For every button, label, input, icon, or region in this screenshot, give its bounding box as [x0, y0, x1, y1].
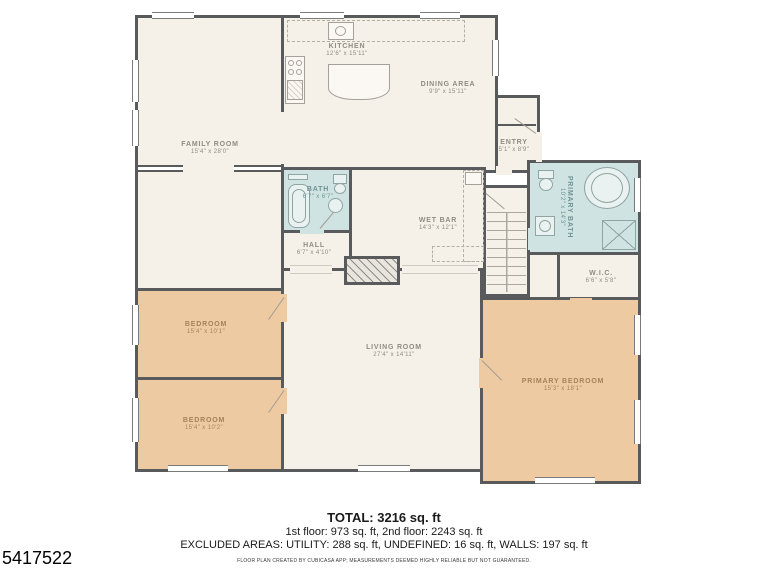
window-primary-bath-right — [634, 178, 641, 212]
primary-bath-toilet-bowl — [539, 178, 553, 191]
summary-floors: 1st floor: 973 sq. ft, 2nd floor: 2243 s… — [0, 526, 768, 538]
window-family-left-1 — [132, 60, 139, 102]
window-primary-bedroom-right-2 — [634, 400, 641, 444]
kitchen-counter — [287, 20, 465, 42]
family-room-opening-left — [138, 165, 183, 172]
wet-bar-sink — [465, 172, 482, 185]
kitchen-sink-basin — [335, 26, 346, 36]
room-living-room — [281, 268, 483, 472]
window-bedroom-2-left — [132, 398, 139, 442]
entry-hall-opening — [496, 166, 512, 175]
window-top-2 — [300, 12, 344, 19]
wet-bar-counter-horizontal — [432, 246, 484, 262]
entry-closet-divider — [498, 124, 536, 126]
window-bedroom-1-left — [132, 305, 139, 345]
primary-bath-shower — [602, 220, 636, 250]
stove-burner-4 — [296, 69, 302, 75]
summary-excluded-areas: EXCLUDED AREAS: UTILITY: 288 sq. ft, UND… — [0, 539, 768, 551]
floor-plan-page: FAMILY ROOM 15'4" x 28'0" KITCHEN 12'6" … — [0, 0, 768, 576]
wet-bar-living-opening — [402, 265, 478, 274]
room-bedroom-2 — [135, 377, 284, 472]
family-room-opening-right — [234, 165, 281, 172]
window-top-3 — [420, 12, 460, 19]
summary-disclaimer: FLOOR PLAN CREATED BY CUBICASA APP; MEAS… — [0, 558, 768, 564]
wic-door-gap — [570, 298, 592, 304]
primary-bath-tub-inner — [591, 173, 623, 203]
room-bedroom-1 — [135, 288, 284, 380]
fireplace — [344, 256, 400, 285]
bath-sink — [328, 198, 343, 213]
front-door-gap — [536, 132, 542, 162]
window-bedroom-2-bottom — [168, 465, 228, 472]
window-primary-bedroom-right-1 — [634, 315, 641, 355]
window-family-left-2 — [132, 110, 139, 146]
oven — [287, 80, 303, 100]
kitchen-family-opening — [280, 112, 287, 164]
window-living-bottom — [358, 465, 410, 472]
summary-total: TOTAL: 3216 sq. ft — [0, 510, 768, 525]
room-primary-bedroom — [480, 297, 641, 484]
window-top-1 — [152, 12, 194, 19]
room-family-room — [135, 15, 284, 291]
stove-burner-2 — [296, 60, 302, 66]
stove-burner-1 — [288, 60, 294, 66]
primary-bath-sink — [539, 220, 551, 232]
listing-id: 5417522 — [2, 548, 72, 569]
stairs-steps — [487, 212, 526, 292]
window-primary-bedroom-bottom — [535, 477, 595, 484]
hall-living-opening — [290, 265, 332, 274]
bath-shelf — [288, 174, 308, 180]
bath-tub-inner — [292, 189, 306, 223]
window-dining-right — [492, 40, 499, 76]
bath-toilet-bowl — [334, 183, 346, 194]
stove-burner-3 — [288, 69, 294, 75]
room-wic — [557, 252, 641, 302]
kitchen-island — [328, 64, 390, 100]
bath-door-gap — [300, 229, 324, 234]
